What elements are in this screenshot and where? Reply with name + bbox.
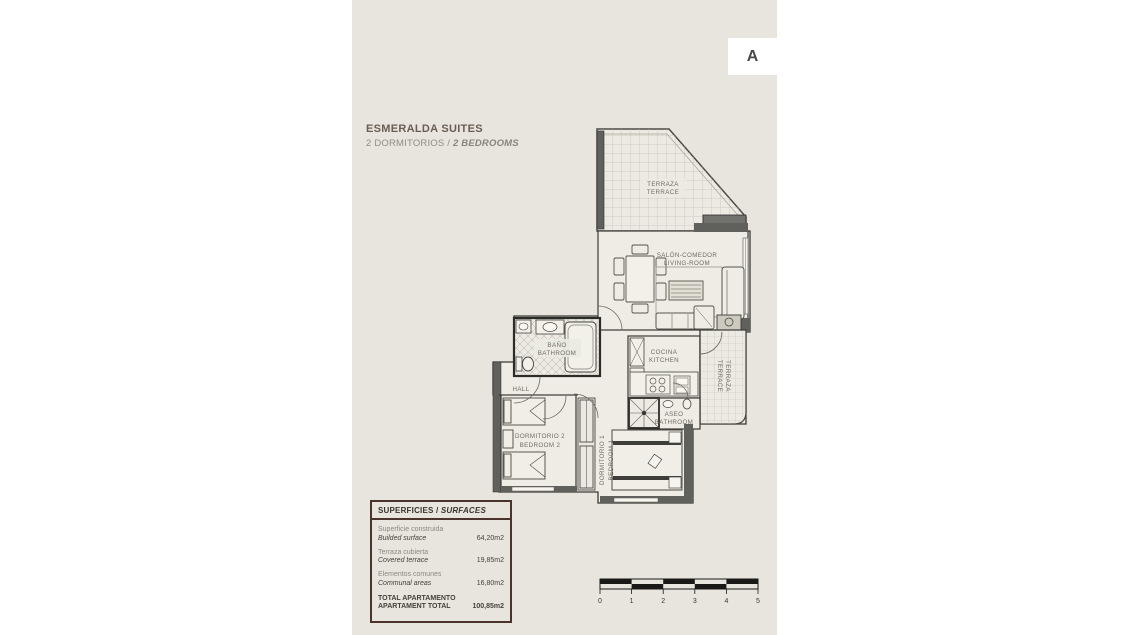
surface-row-communal-es: Elementos comunes	[378, 571, 504, 580]
surface-total-row: TOTAL APARTAMENTO APARTAMENT TOTAL 100,8…	[378, 595, 504, 613]
wall-segment	[694, 223, 748, 232]
terrace-top: TERRAZA TERRACE	[597, 129, 746, 231]
toilet	[516, 357, 522, 371]
surfaces-title-en: SURFACES	[441, 506, 486, 515]
room-label-kitchen-es: COCINA	[651, 349, 678, 356]
plan-letter: A	[747, 48, 759, 66]
subtitle-es: 2 DORMITORIOS /	[366, 138, 453, 149]
room-label-bedroom2-es: DORMITORIO 2	[515, 433, 565, 440]
scale-label-5: 5	[756, 598, 760, 605]
room-label-bedroom1-en: BEDROOM 1	[608, 439, 615, 480]
surfaces-title-es: SUPERFICIES /	[378, 506, 441, 515]
bathroom-main: BAÑO BATHROOM	[514, 318, 600, 376]
scale-bar: 0 1 2 3 4 5	[598, 576, 760, 606]
room-label-hall: HALL	[512, 386, 529, 393]
aseo-sink	[663, 401, 673, 408]
surface-row-terrace-en: Covered terrace	[378, 557, 428, 566]
room-label-terrace-top-es: TERRAZA	[647, 181, 679, 188]
room-label-terrace-side-en: TERRACE	[716, 360, 723, 392]
surface-row-built-en: Builded surface	[378, 535, 426, 544]
scale-label-2: 2	[661, 598, 665, 605]
surface-total-en: APARTAMENT TOTAL	[378, 603, 451, 612]
kitchen: COCINA KITCHEN	[628, 336, 700, 398]
brochure-page: A ESMERALDA SUITES 2 DORMITORIOS / 2 BED…	[352, 0, 777, 635]
room-label-aseo-es: ASEO	[665, 411, 684, 418]
scale-label-3: 3	[693, 598, 697, 605]
bedroom-2: DORMITORIO 2 BEDROOM 2	[501, 395, 577, 492]
surface-row-communal-value: 16,80m2	[477, 580, 504, 589]
surface-row-terrace: Terraza cubierta Covered terrace 19,85m2	[378, 549, 504, 567]
scale-bar-svg: 0 1 2 3 4 5	[598, 576, 760, 606]
terrace-side: TERRAZA TERRACE	[700, 330, 746, 424]
bedroom1-wall	[684, 424, 693, 496]
surface-total-es: TOTAL APARTAMENTO	[378, 595, 504, 604]
surface-total-value: 100,85m2	[472, 603, 504, 612]
bedroom1-window	[614, 498, 658, 502]
tv-unit	[717, 315, 741, 330]
nightstand	[503, 430, 513, 448]
surfaces-table: SUPERFICIES / SURFACES Superficie constr…	[370, 500, 512, 623]
room-label-bedroom1-es: DORMITORIO 1	[599, 435, 606, 485]
room-label-bathroom-es: BAÑO	[547, 342, 566, 349]
room-label-bathroom-en: BATHROOM	[538, 350, 577, 357]
exterior-wall	[493, 362, 501, 492]
room-label-terrace-side-es: TERRAZA	[724, 360, 731, 392]
terrace-wall	[597, 131, 604, 229]
aseo-toilet	[683, 399, 691, 409]
surfaces-body: Superficie construida Builded surface 64…	[372, 520, 510, 621]
surface-row-terrace-es: Terraza cubierta	[378, 549, 504, 558]
surface-row-built-es: Superficie construida	[378, 526, 504, 535]
room-label-bedroom2-en: BEDROOM 2	[520, 442, 561, 449]
room-label-living-en: LIVING-ROOM	[664, 260, 710, 267]
surfaces-header: SUPERFICIES / SURFACES	[372, 502, 510, 520]
living-room: SALÓN-COMEDOR LIVING-ROOM	[598, 223, 750, 332]
floor-plan: TERRAZA TERRACE	[480, 124, 770, 506]
surface-row-built-value: 64,20m2	[477, 535, 504, 544]
floor-plan-svg: TERRAZA TERRACE	[480, 124, 770, 506]
surface-row-terrace-value: 19,85m2	[477, 557, 504, 566]
room-label-living-es: SALÓN-COMEDOR	[657, 252, 718, 259]
surface-row-communal: Elementos comunes Communal areas 16,80m2	[378, 571, 504, 589]
scale-label-4: 4	[724, 598, 728, 605]
pillow	[669, 477, 681, 488]
bedroom2-window	[512, 487, 554, 491]
closet	[578, 398, 595, 490]
room-label-terrace-top-en: TERRACE	[647, 189, 679, 196]
scale-bar-blocks	[600, 579, 758, 589]
pillow	[669, 432, 681, 443]
plan-letter-badge: A	[728, 38, 777, 75]
scale-bar-ticks	[600, 589, 758, 594]
room-label-kitchen-en: KITCHEN	[649, 357, 679, 364]
scale-label-1: 1	[630, 598, 634, 605]
surface-row-communal-en: Communal areas	[378, 580, 431, 589]
surface-row-built: Superficie construida Builded surface 64…	[378, 526, 504, 544]
scale-label-0: 0	[598, 598, 602, 605]
